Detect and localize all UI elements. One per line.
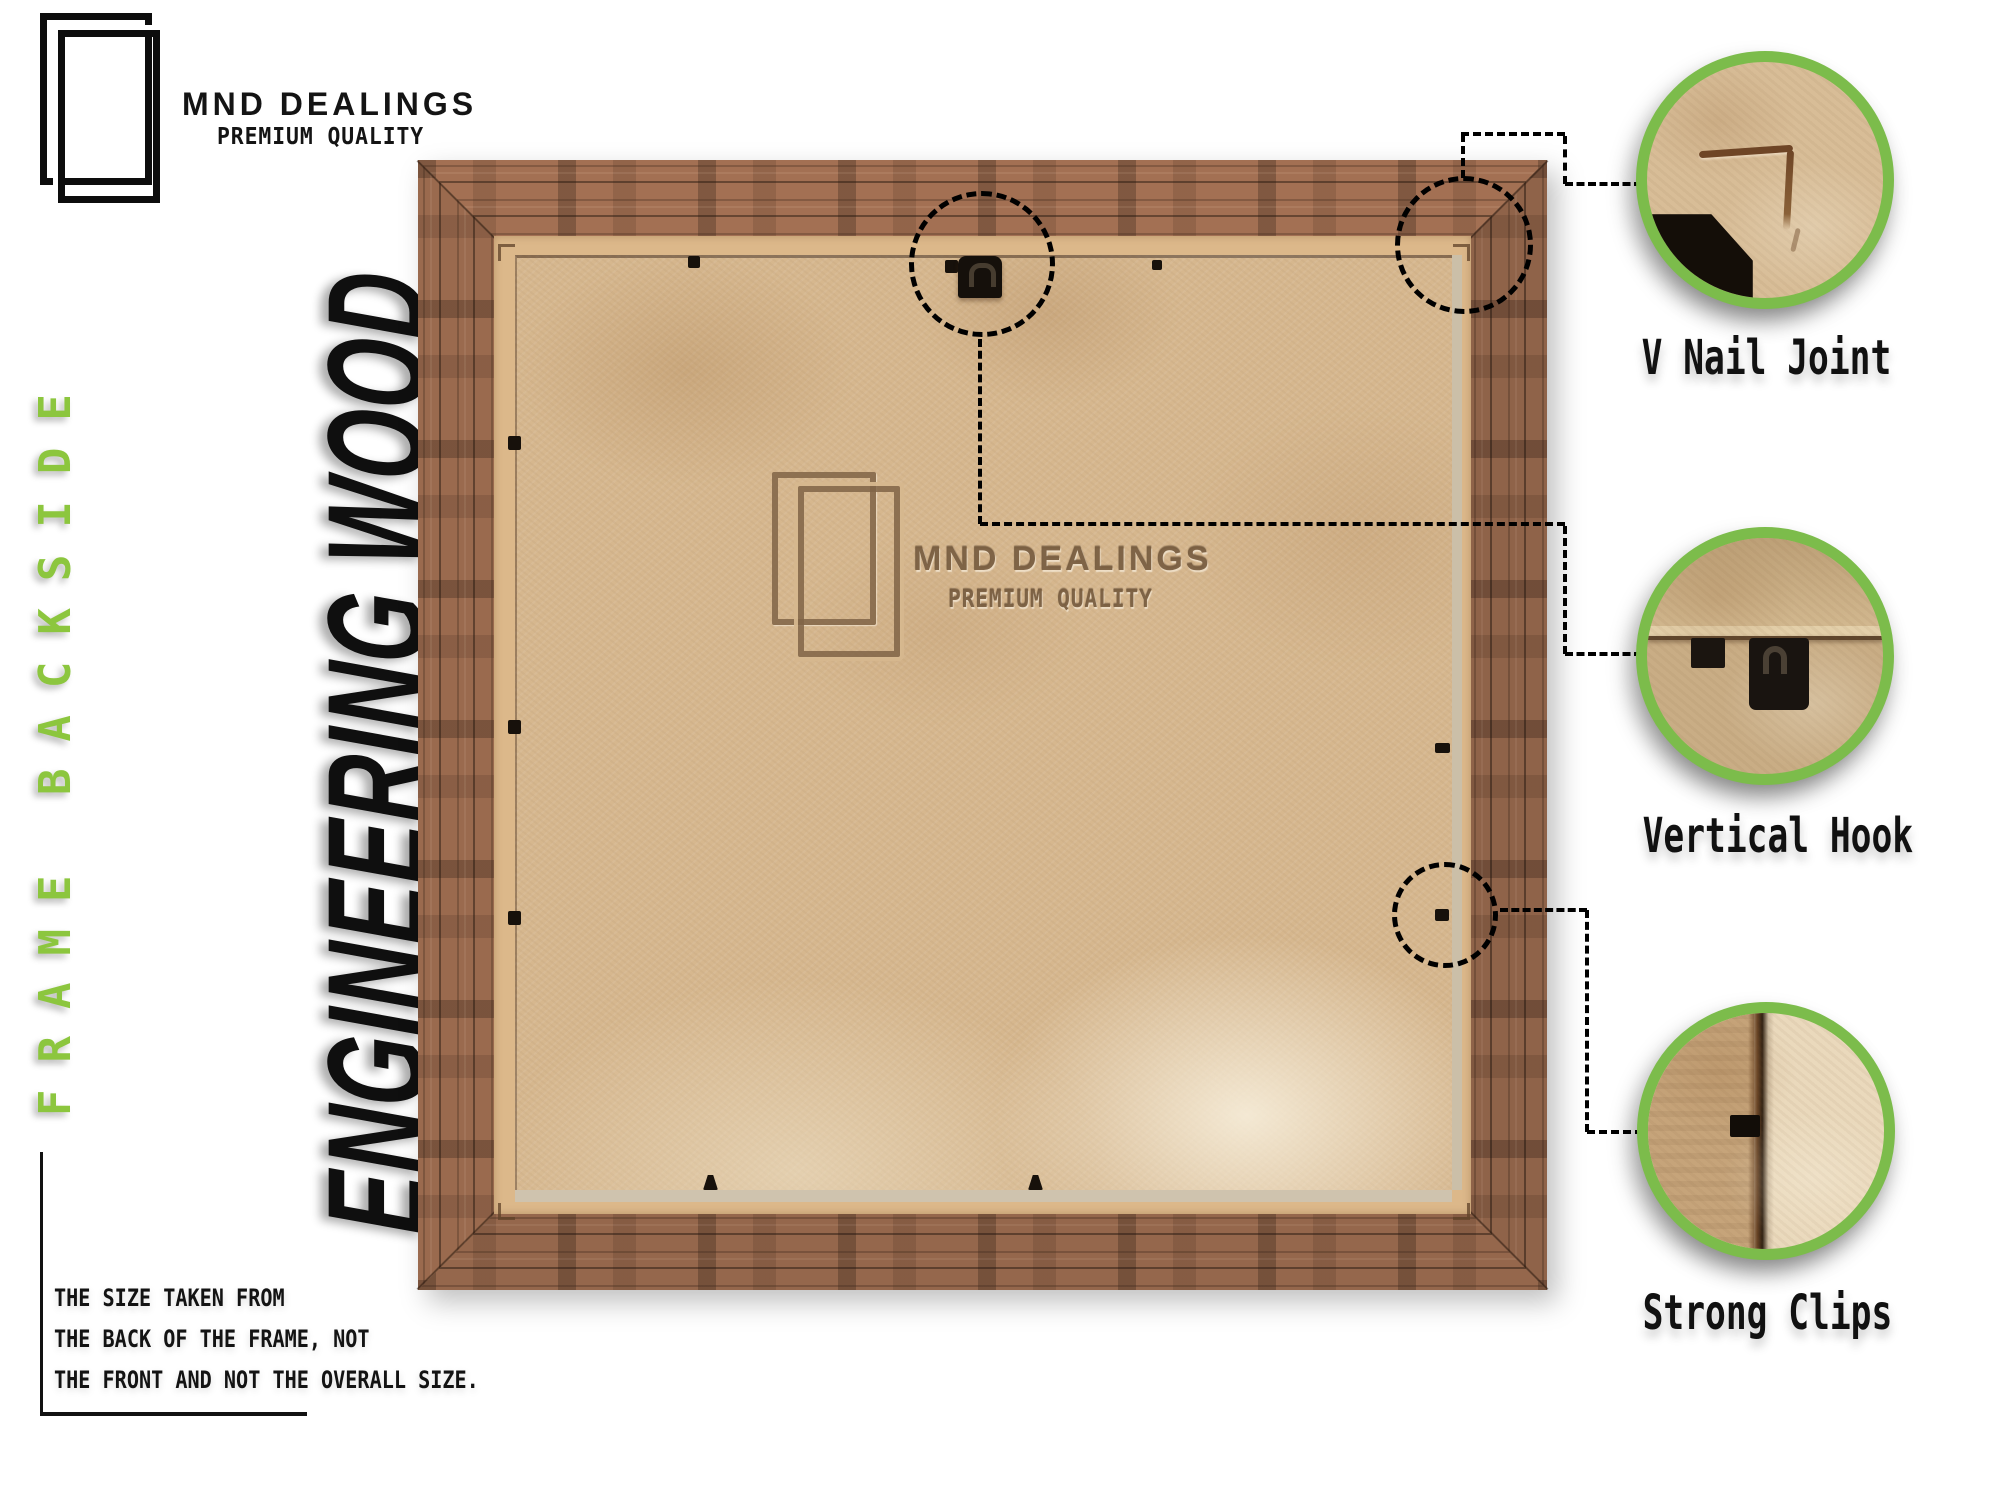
highlight-circle-corner-joint: [1395, 176, 1533, 314]
hook-arch-detail: [1763, 646, 1787, 674]
metal-clip: [1435, 743, 1450, 753]
note-line-1: THE SIZE TAKEN FROM: [54, 1284, 285, 1312]
connector-hook: [980, 522, 1565, 526]
callout-label-v-nail-joint: V Nail Joint: [1642, 330, 1887, 386]
corner-mark-top-left: [498, 244, 515, 261]
corner-mark-bottom-right: [1453, 1203, 1470, 1220]
connector-clips: [1587, 1130, 1643, 1134]
product-graphic: MND DEALINGS PREMIUM QUALITY FRAME BACKS…: [0, 0, 2000, 1500]
wood-band-left: [418, 160, 496, 1290]
callout-label-strong-clips: Strong Clips: [1643, 1285, 1888, 1341]
mdf-texture: [1648, 1013, 1884, 1249]
connector-clips: [1500, 908, 1587, 912]
hook-clip-tab: [1691, 638, 1725, 668]
watermark-brand: MND DEALINGS: [913, 540, 1212, 579]
wood-band-bottom: [418, 1212, 1547, 1290]
brand-logo-rect-front: [58, 30, 160, 203]
callout-label-vertical-hook: Vertical Hook: [1643, 808, 1888, 864]
back-nail: [1152, 260, 1162, 270]
watermark-tagline: PREMIUM QUALITY: [948, 584, 1153, 613]
highlight-circle-hook: [909, 191, 1055, 337]
corner-mark-bottom-left: [498, 1203, 515, 1220]
side-label-frame-backside: FRAME BACKSIDE: [30, 367, 81, 1116]
connector-hook: [1563, 526, 1567, 654]
connector-vnail: [1461, 132, 1565, 136]
note-rule-vertical: [40, 1152, 43, 1416]
callout-circle-v-nail-joint: [1636, 51, 1894, 309]
highlight-circle-clip: [1392, 862, 1498, 968]
wood-band-right: [1469, 160, 1547, 1290]
connector-hook: [978, 339, 982, 524]
watermark-group: MND DEALINGS PREMIUM QUALITY: [772, 472, 1612, 672]
back-nail: [508, 911, 521, 925]
mdf-backing-board: [515, 255, 1452, 1190]
metal-clip-zoom: [1730, 1115, 1760, 1137]
connector-vnail: [1461, 134, 1465, 178]
brand-name: MND DEALINGS: [182, 86, 477, 123]
brand-tagline: PREMIUM QUALITY: [217, 124, 424, 150]
note-line-2: THE BACK OF THE FRAME, NOT: [54, 1325, 370, 1353]
note-line-3: THE FRONT AND NOT THE OVERALL SIZE.: [54, 1366, 479, 1394]
connector-clips: [1585, 910, 1589, 1132]
callout-circle-strong-clips: [1637, 1002, 1895, 1260]
connector-vnail: [1563, 136, 1567, 184]
watermark-logo-rect-front: [798, 486, 900, 657]
connector-hook: [1565, 652, 1642, 656]
back-nail: [688, 256, 700, 268]
note-rule-horizontal: [40, 1412, 307, 1416]
board-edge-bottom: [515, 1190, 1452, 1202]
back-nail: [508, 436, 521, 450]
back-nail: [508, 720, 521, 734]
connector-vnail: [1565, 182, 1642, 186]
callout-circle-vertical-hook: [1636, 527, 1894, 785]
